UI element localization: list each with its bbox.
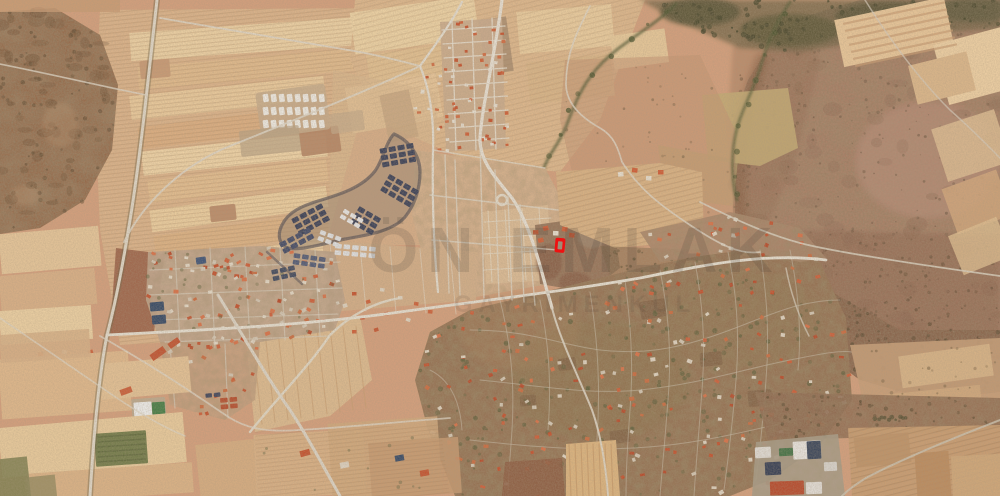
svg-text:GAYRİMENKUL: GAYRİMENKUL	[454, 291, 696, 318]
svg-text:ÖN EMLAK: ÖN EMLAK	[368, 214, 781, 286]
